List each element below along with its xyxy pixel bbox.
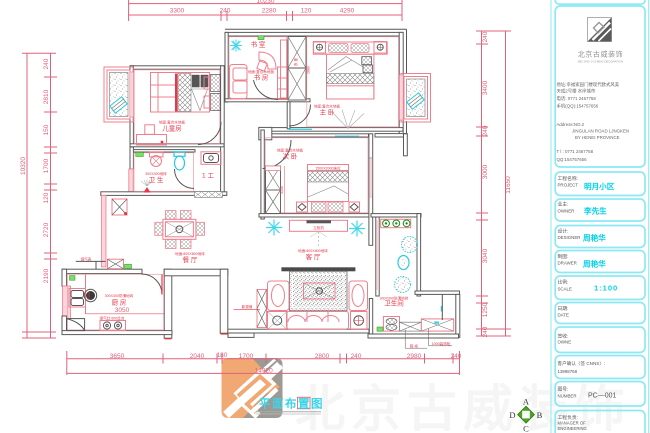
svg-text:1:100: 1:100 <box>594 284 618 293</box>
svg-text:业主:: 业主: <box>558 201 569 208</box>
svg-text:11650: 11650 <box>505 176 512 194</box>
svg-text:地面:复合木地板: 地面:复合木地板 <box>248 69 275 74</box>
svg-text:地面:800X800地砖: 地面:800X800地砖 <box>298 248 328 253</box>
svg-text:240: 240 <box>220 8 231 15</box>
svg-text:客 厅: 客 厅 <box>306 252 321 261</box>
svg-text:SCALE: SCALE <box>558 287 572 292</box>
svg-text:DESIGNER: DESIGNER <box>558 235 581 240</box>
svg-text:OWNER: OWNER <box>558 209 575 214</box>
svg-text:地面:复合木地板: 地面:复合木地板 <box>277 148 304 153</box>
svg-text:工程名称:: 工程名称: <box>558 175 579 182</box>
svg-text:3650: 3650 <box>110 353 125 360</box>
svg-text:次 卧: 次 卧 <box>283 152 298 161</box>
svg-text:Address:NO.2: Address:NO.2 <box>557 122 585 127</box>
svg-text:3040: 3040 <box>482 248 489 263</box>
svg-text:电话: 0771 2467758: 电话: 0771 2467758 <box>557 95 597 102</box>
svg-text:180: 180 <box>217 352 228 359</box>
svg-text:主 卧: 主 卧 <box>320 108 335 117</box>
svg-text:儿童房: 儿童房 <box>162 124 182 133</box>
svg-text:周艳华: 周艳华 <box>583 259 606 269</box>
svg-text:13998768: 13998768 <box>558 369 578 374</box>
svg-text:JINGULAN ROAD LJNGKEN: JINGULAN ROAD LJNGKEN <box>572 129 629 134</box>
svg-text:北京古威装饰: 北京古威装饰 <box>578 50 624 59</box>
svg-text:明月小区: 明月小区 <box>584 181 615 191</box>
svg-text:QQ:154757656: QQ:154757656 <box>557 157 588 162</box>
svg-text:14920: 14920 <box>255 367 273 374</box>
svg-text:ENGINEERING: ENGINEERING <box>558 426 587 431</box>
svg-text:3050: 3050 <box>115 307 130 314</box>
svg-text:比例:: 比例: <box>558 279 569 286</box>
svg-text:3400: 3400 <box>482 80 489 95</box>
svg-text:1 工: 1 工 <box>202 173 214 180</box>
svg-text:1700: 1700 <box>43 158 50 173</box>
svg-text:240: 240 <box>482 125 489 136</box>
svg-text:C: C <box>523 424 529 433</box>
svg-text:2980: 2980 <box>407 353 422 360</box>
svg-text:客户确认〈签 CNNS〉:: 客户确认〈签 CNNS〉: <box>558 360 606 367</box>
svg-text:2810: 2810 <box>43 89 50 104</box>
svg-text:立柜机: 立柜机 <box>313 225 324 230</box>
svg-text:4290: 4290 <box>340 8 355 15</box>
svg-text:1700: 1700 <box>239 353 254 360</box>
svg-text:T l : 0771 2467758: T l : 0771 2467758 <box>557 149 594 154</box>
svg-text:天成2号楼 水岸城市: 天成2号楼 水岸城市 <box>557 88 596 95</box>
svg-text:手机(QQ):154757656: 手机(QQ):154757656 <box>557 103 599 110</box>
svg-text:BEI JING JI CHENG DECORATION: BEI JING JI CHENG DECORATION <box>578 59 623 63</box>
svg-text:240: 240 <box>351 353 362 360</box>
svg-text:2190: 2190 <box>43 268 50 283</box>
svg-text:DATE: DATE <box>558 313 569 318</box>
svg-text:鞋 柜: 鞋 柜 <box>410 343 419 348</box>
svg-text:NUMBER: NUMBER <box>558 394 577 399</box>
svg-text:240: 240 <box>451 353 462 360</box>
svg-text:餐 厅: 餐 厅 <box>183 255 198 264</box>
svg-text:MANAGER OF: MANAGER OF <box>558 421 587 426</box>
svg-text:240: 240 <box>482 31 489 42</box>
svg-text:2280: 2280 <box>262 8 277 15</box>
svg-text:地址:幸福家园门楼现代欧式风美: 地址:幸福家园门楼现代欧式风美 <box>557 81 620 88</box>
svg-text:PC—001: PC—001 <box>588 393 617 400</box>
svg-text:BY HENEI PROVINCE: BY HENEI PROVINCE <box>575 135 620 140</box>
svg-text:10320: 10320 <box>20 157 27 175</box>
svg-text:制图:: 制图: <box>558 253 569 260</box>
svg-text:300X300地砖: 300X300地砖 <box>145 171 167 176</box>
svg-text:240: 240 <box>482 326 489 337</box>
svg-text:厨 房: 厨 房 <box>112 298 127 307</box>
svg-text:卫 生: 卫 生 <box>149 175 164 184</box>
svg-text:150: 150 <box>43 124 50 135</box>
svg-text:3000: 3000 <box>482 164 489 179</box>
svg-text:300X300防滑地砖: 300X300防滑地砖 <box>105 293 134 298</box>
svg-text:图号:: 图号: <box>558 387 569 393</box>
svg-text:B: B <box>537 410 543 420</box>
svg-text:衣 柜: 衣 柜 <box>293 58 298 67</box>
svg-text:10230: 10230 <box>256 0 274 5</box>
svg-text:1000装饰柜: 1000装饰柜 <box>432 341 451 346</box>
svg-text:D: D <box>509 410 515 420</box>
svg-text:OWNE: OWNE <box>558 340 572 345</box>
svg-text:2720: 2720 <box>43 222 50 237</box>
svg-text:PROJECT: PROJECT <box>558 183 579 188</box>
svg-text:签收:: 签收: <box>558 333 569 340</box>
svg-text:书 房: 书 房 <box>254 73 269 82</box>
svg-text:书 室: 书 室 <box>251 40 266 49</box>
svg-text:1250: 1250 <box>482 302 489 317</box>
svg-text:地面:复合木地板: 地面:复合木地板 <box>159 120 186 125</box>
svg-text:1500X2000床位: 1500X2000床位 <box>315 166 341 171</box>
svg-text:240: 240 <box>43 58 50 69</box>
svg-text:2800: 2800 <box>315 353 330 360</box>
svg-text:A: A <box>523 397 530 407</box>
svg-text:煤气灶 600灶台: 煤气灶 600灶台 <box>100 316 125 321</box>
svg-text:DRAWER: DRAWER <box>558 261 577 266</box>
svg-text:煤气表: 煤气表 <box>81 256 92 261</box>
svg-text:设计:: 设计: <box>558 228 569 235</box>
svg-text:2880: 2880 <box>307 66 311 74</box>
svg-text:卫生间: 卫生间 <box>384 299 404 308</box>
svg-text:平面布置图: 平面布置图 <box>259 397 324 411</box>
svg-text:地面:复合木地板: 地面:复合木地板 <box>314 104 341 109</box>
svg-text:李先生: 李先生 <box>583 206 607 216</box>
svg-text:周艳华: 周艳华 <box>583 233 606 243</box>
svg-text:3300: 3300 <box>170 8 185 15</box>
svg-text:日期:: 日期: <box>558 306 569 312</box>
svg-text:影视墙: 影视墙 <box>242 304 253 309</box>
svg-text:3150: 3150 <box>280 186 284 194</box>
svg-text:120: 120 <box>43 192 50 203</box>
svg-text:120: 120 <box>301 8 312 15</box>
svg-text:2040: 2040 <box>190 353 205 360</box>
svg-text:地面:800X800地砖: 地面:800X800地砖 <box>175 251 205 256</box>
svg-text:2400: 2400 <box>87 292 91 300</box>
